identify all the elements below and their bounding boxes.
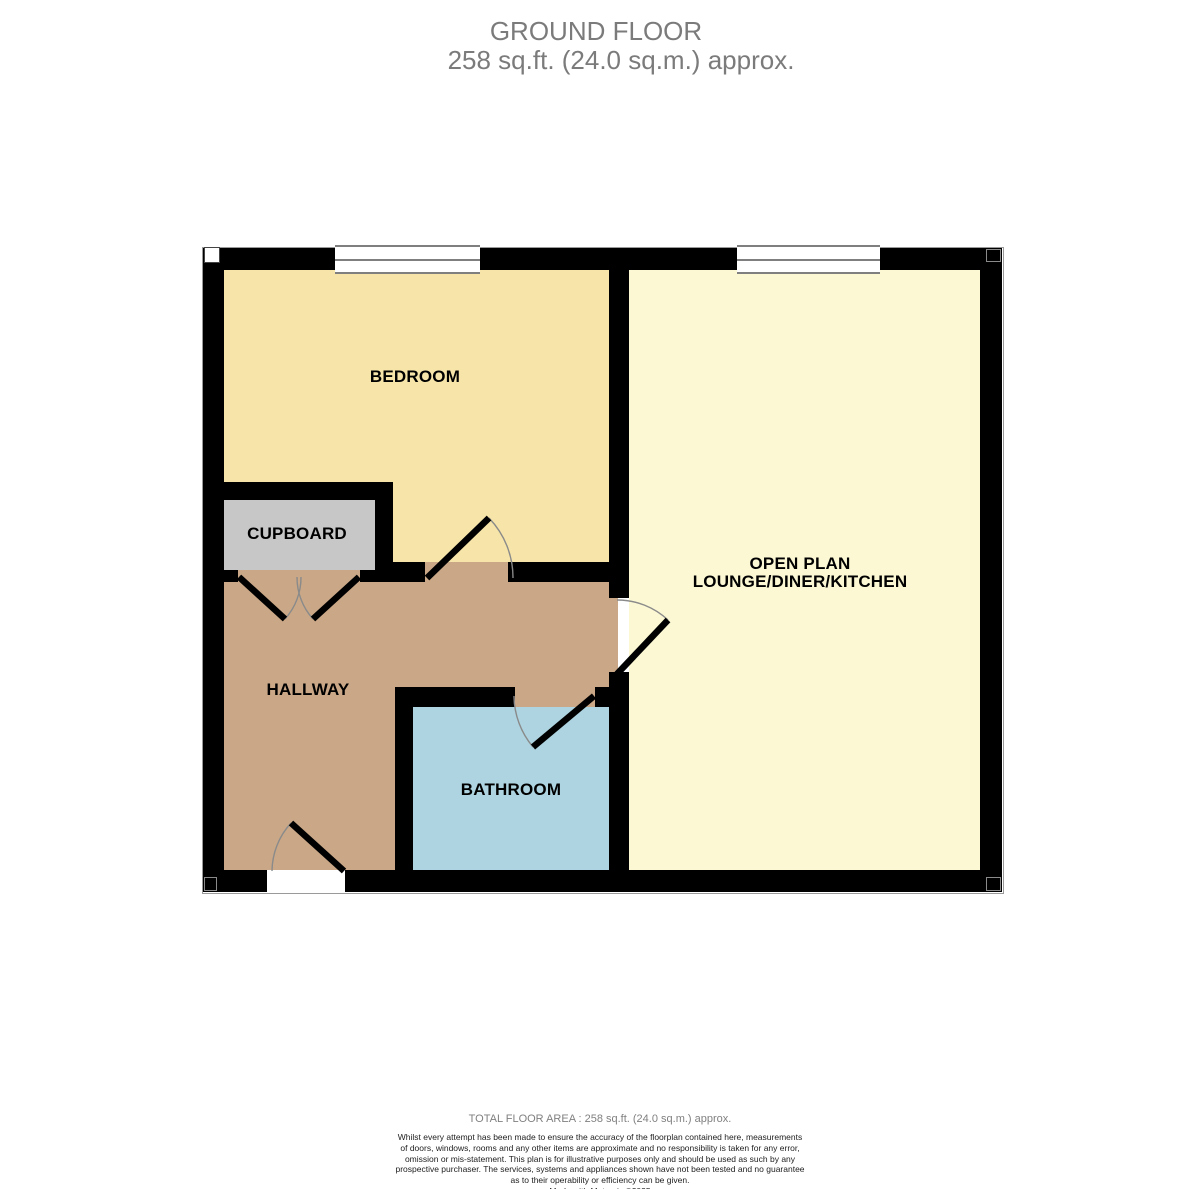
wall-left (203, 248, 224, 892)
bathroom-label: BATHROOM (461, 781, 561, 799)
floorplan-page: GROUND FLOOR 258 sq.ft. (24.0 sq.m.) app… (0, 0, 1200, 1189)
lounge-label-line1: OPEN PLAN (693, 555, 908, 573)
corner-notch-bottom-left (204, 877, 217, 891)
cupboard-label: CUPBOARD (247, 525, 347, 543)
disclaimer-line-5: as to their operability or efficiency ca… (395, 1175, 804, 1186)
wall-cupboard-top (224, 482, 393, 500)
disclaimer-line-2: of doors, windows, rooms and any other i… (395, 1143, 804, 1154)
wall-bedroom-bottom-right (508, 562, 609, 582)
lounge-label-line2: LOUNGE/DINER/KITCHEN (693, 573, 908, 591)
page-title: GROUND FLOOR (490, 16, 702, 47)
post-cupboard-left (224, 570, 238, 582)
disclaimer-line-3: omission or mis-statement. This plan is … (395, 1154, 804, 1165)
page-subtitle-area: 258 sq.ft. (24.0 sq.m.) approx. (448, 45, 795, 76)
wall-cupboard-right (375, 482, 393, 582)
bedroom-window (335, 245, 480, 274)
lounge-window (737, 245, 880, 274)
wall-divider-upper (609, 270, 629, 598)
wall-top-middle (480, 248, 737, 270)
wall-bathroom-left (395, 687, 413, 870)
disclaimer-line-1: Whilst every attempt has been made to en… (395, 1132, 804, 1143)
total-floor-area: TOTAL FLOOR AREA : 258 sq.ft. (24.0 sq.m… (395, 1113, 804, 1125)
wall-bedroom-bottom-mid (393, 562, 425, 582)
post-cupboard-right (360, 570, 375, 582)
wall-right (980, 248, 1002, 892)
disclaimer-line-4: prospective purchaser. The services, sys… (395, 1164, 804, 1175)
bedroom-window-mullion (335, 259, 480, 261)
post-bathroom-right (595, 687, 629, 707)
wall-bottom-right (345, 870, 1002, 892)
footer: TOTAL FLOOR AREA : 258 sq.ft. (24.0 sq.m… (395, 1113, 804, 1189)
room-hallway-door-notch (609, 598, 618, 672)
wall-bathroom-top (395, 687, 515, 707)
corner-notch-bottom-right (986, 877, 1001, 891)
hallway-label: HALLWAY (267, 681, 350, 699)
corner-notch-top-left (204, 247, 220, 263)
lounge-label: OPEN PLAN LOUNGE/DINER/KITCHEN (693, 555, 908, 591)
corner-notch-top-right (986, 249, 1001, 262)
bedroom-label: BEDROOM (370, 368, 460, 386)
lounge-window-mullion (737, 259, 880, 261)
room-bedroom-lower (393, 482, 609, 562)
